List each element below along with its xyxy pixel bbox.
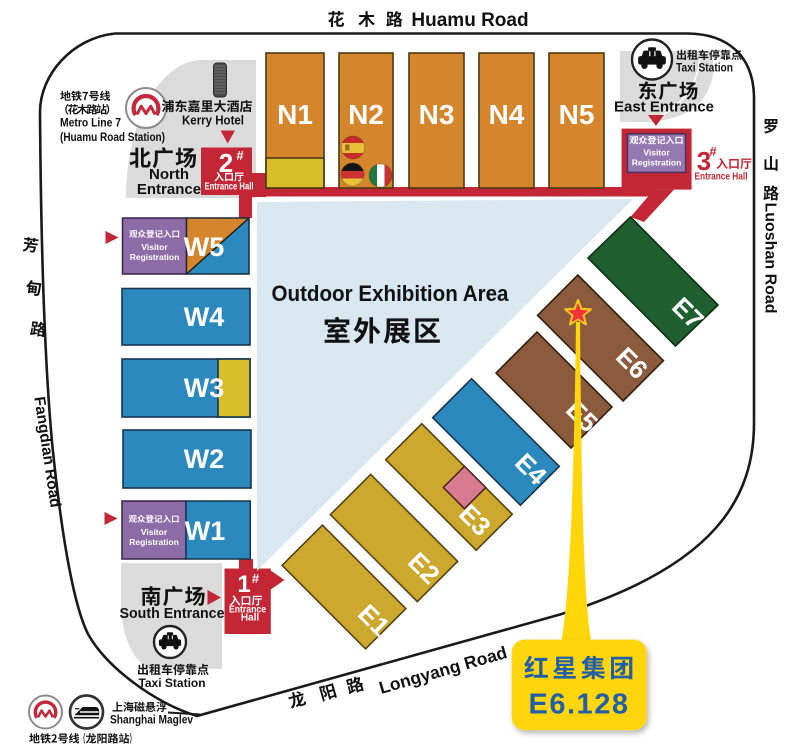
svg-text:Shanghai Maglev: Shanghai Maglev bbox=[110, 713, 193, 727]
svg-text:Visitor: Visitor bbox=[643, 148, 670, 158]
svg-text:(Huamu Road Station): (Huamu Road Station) bbox=[60, 132, 165, 144]
svg-text:Entrance Hall: Entrance Hall bbox=[205, 182, 254, 193]
svg-text:E6.128: E6.128 bbox=[529, 689, 630, 721]
svg-text:N3: N3 bbox=[419, 99, 455, 130]
svg-text:Visitor: Visitor bbox=[141, 527, 168, 537]
svg-text:N2: N2 bbox=[348, 99, 384, 130]
svg-text:Taxi Station: Taxi Station bbox=[676, 63, 733, 75]
svg-text:N4: N4 bbox=[489, 99, 525, 130]
svg-text:#: # bbox=[252, 571, 260, 586]
svg-text:W5: W5 bbox=[184, 232, 225, 262]
svg-text:W1: W1 bbox=[185, 516, 226, 546]
svg-text:1: 1 bbox=[237, 571, 250, 598]
svg-text:Visitor: Visitor bbox=[141, 242, 168, 252]
svg-text:Kerry Hotel: Kerry Hotel bbox=[182, 113, 244, 128]
svg-text:South Entrance: South Entrance bbox=[120, 605, 225, 622]
svg-text:Huamu Road: Huamu Road bbox=[411, 10, 528, 31]
svg-text:Registration: Registration bbox=[129, 537, 179, 547]
svg-text:#: # bbox=[709, 144, 717, 159]
svg-text:W2: W2 bbox=[184, 444, 225, 474]
svg-text:#: # bbox=[236, 148, 244, 163]
svg-text:W3: W3 bbox=[184, 373, 225, 403]
svg-text:N1: N1 bbox=[277, 99, 313, 130]
svg-text:East Entrance: East Entrance bbox=[614, 99, 714, 116]
svg-text:Metro Line 7: Metro Line 7 bbox=[60, 118, 121, 130]
svg-text:Entrance: Entrance bbox=[137, 181, 201, 198]
svg-text:Registration: Registration bbox=[130, 252, 180, 262]
svg-text:Hall: Hall bbox=[241, 613, 260, 624]
svg-text:Entrance Hall: Entrance Hall bbox=[695, 171, 748, 183]
svg-text:Registration: Registration bbox=[632, 158, 682, 168]
svg-text:Luoshan Road: Luoshan Road bbox=[762, 202, 779, 313]
svg-text:Outdoor Exhibition Area: Outdoor Exhibition Area bbox=[272, 281, 510, 306]
svg-text:Taxi Station: Taxi Station bbox=[138, 676, 205, 690]
svg-text:N5: N5 bbox=[559, 99, 595, 130]
svg-text:W4: W4 bbox=[184, 302, 225, 332]
